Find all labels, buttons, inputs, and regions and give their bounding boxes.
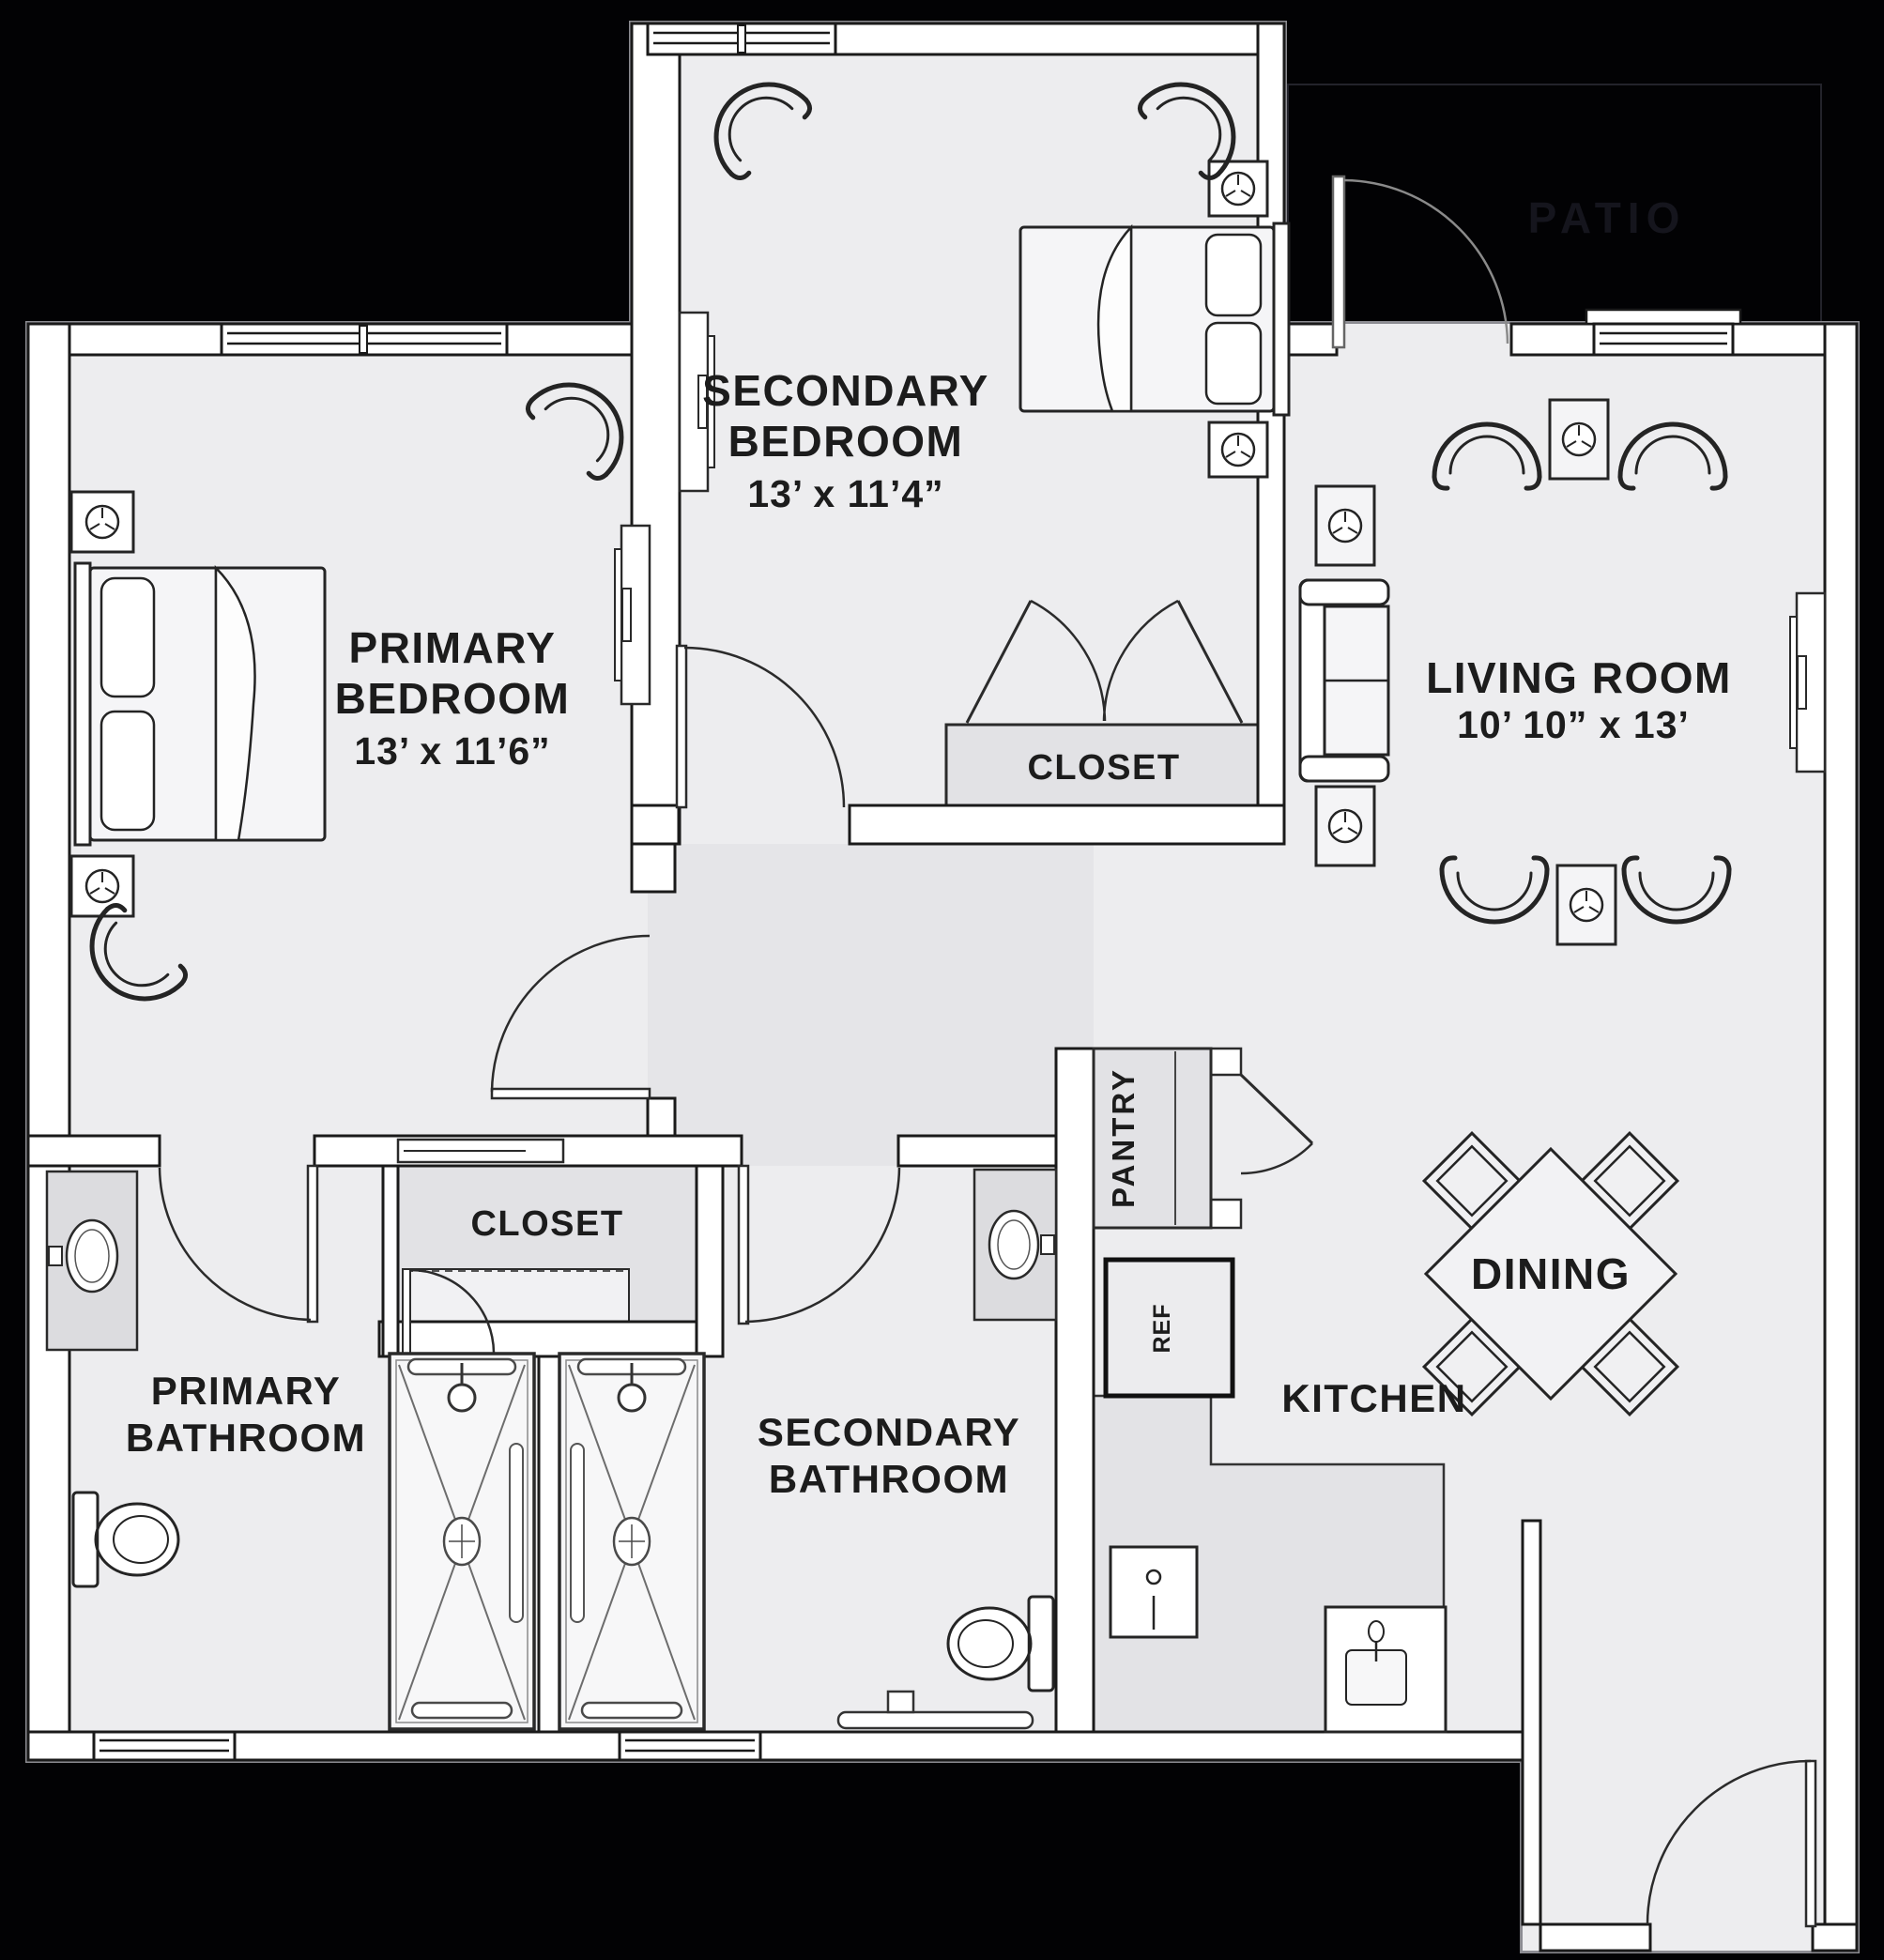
side-table-icon <box>1557 865 1616 944</box>
wall <box>383 1166 398 1356</box>
shower-icon <box>390 1354 534 1729</box>
svg-text:10’ 10” x 13’: 10’ 10” x 13’ <box>1457 703 1690 746</box>
tv-icon <box>1790 593 1825 772</box>
side-table-icon <box>1550 400 1608 479</box>
wall <box>235 1732 620 1760</box>
wall <box>379 1322 723 1356</box>
tv-icon <box>615 526 650 704</box>
svg-text:PRIMARY: PRIMARY <box>151 1369 342 1413</box>
secondary-closet-label: CLOSET <box>1027 748 1180 788</box>
primary-bedroom-label: PRIMARY BEDROOM 13’ x 11’6” <box>335 623 571 773</box>
bed-icon <box>1020 223 1289 415</box>
svg-text:13’ x 11’6”: 13’ x 11’6” <box>354 729 550 773</box>
stove-icon <box>1110 1547 1197 1637</box>
wall <box>1284 324 1337 355</box>
wall <box>1523 1521 1540 1924</box>
wall <box>28 1136 160 1166</box>
window <box>94 1732 235 1760</box>
svg-text:BATHROOM: BATHROOM <box>126 1416 366 1460</box>
window <box>620 1732 760 1760</box>
wall <box>28 324 69 1166</box>
living-room-label: LIVING ROOM 10’ 10” x 13’ <box>1426 653 1732 746</box>
hall-console-icon <box>398 1140 563 1162</box>
wall <box>835 23 1284 54</box>
wall <box>1813 1924 1857 1951</box>
wall <box>539 1354 559 1732</box>
patio-label: PATIO <box>1528 193 1687 242</box>
wall <box>1056 1049 1094 1732</box>
window <box>648 23 835 54</box>
svg-text:PRIMARY: PRIMARY <box>349 623 557 672</box>
svg-text:13’ x 11’4”: 13’ x 11’4” <box>747 472 943 515</box>
wall <box>28 1732 94 1760</box>
window <box>1586 310 1740 355</box>
svg-text:SECONDARY: SECONDARY <box>702 366 989 415</box>
kitchen-sink-icon <box>1325 1607 1446 1732</box>
bathroom-sink-icon <box>47 1171 137 1350</box>
wall <box>632 23 680 844</box>
svg-text:BEDROOM: BEDROOM <box>728 417 964 466</box>
shower-icon <box>559 1354 704 1729</box>
sofa-icon <box>1300 580 1388 781</box>
refrigerator-label: REF <box>1149 1304 1175 1354</box>
side-table-icon <box>1316 486 1374 565</box>
svg-text:SECONDARY: SECONDARY <box>758 1410 1020 1454</box>
window <box>222 324 507 355</box>
refrigerator: REF <box>1106 1260 1233 1396</box>
side-table-icon <box>1316 787 1374 865</box>
wall <box>632 805 679 844</box>
bed-icon <box>75 563 325 845</box>
wall <box>850 805 1284 844</box>
dining-set: DINING <box>1424 1133 1677 1415</box>
svg-text:LIVING ROOM: LIVING ROOM <box>1426 653 1732 702</box>
dining-label: DINING <box>1471 1249 1631 1298</box>
wall <box>1540 1924 1650 1951</box>
primary-closet-label: CLOSET <box>470 1204 623 1244</box>
wall <box>760 1732 1540 1760</box>
bathroom-sink-icon <box>974 1170 1056 1320</box>
wall <box>1825 324 1857 1951</box>
pantry-label: PANTRY <box>1106 1067 1141 1208</box>
kitchen-label: KITCHEN <box>1281 1376 1466 1420</box>
svg-text:BEDROOM: BEDROOM <box>335 674 571 723</box>
floor-plan: PATIO <box>0 0 1884 1960</box>
svg-text:BATHROOM: BATHROOM <box>769 1457 1009 1501</box>
floor-plan-svg: PATIO <box>0 0 1884 1960</box>
wall <box>697 1166 723 1356</box>
pantry: PANTRY <box>1094 1049 1211 1228</box>
hallway-floor <box>675 844 1094 1166</box>
wall <box>1511 324 1594 355</box>
